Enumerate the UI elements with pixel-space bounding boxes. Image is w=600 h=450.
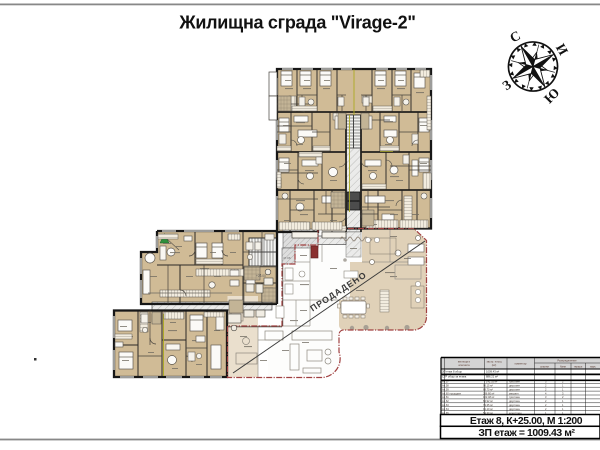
- svg-text:Ап.58: Ап.58: [442, 384, 449, 388]
- svg-text:Ап.59: Ап.59: [442, 387, 449, 391]
- svg-text:Ап.64: Ап.64: [442, 407, 449, 411]
- svg-text:Ап.61: Ап.61: [442, 395, 449, 399]
- svg-text:Ап.60 продаден: Ап.60 продаден: [442, 391, 462, 395]
- svg-text:бани: бани: [560, 365, 566, 369]
- svg-text:Ап.62: Ап.62: [442, 399, 449, 403]
- svg-text:ателиета: ателиета: [458, 364, 470, 367]
- svg-text:коментар: коментар: [515, 363, 527, 366]
- svg-text:47.06: 47.06: [283, 256, 291, 260]
- svg-text:1009.43 м²: 1009.43 м²: [486, 369, 499, 373]
- svg-text:+25.00: +25.00: [256, 274, 266, 278]
- svg-text:Разпределение: Разпределение: [557, 359, 577, 363]
- svg-text:Жилищна сграда "Virage-2": Жилищна сграда "Virage-2": [178, 13, 415, 33]
- svg-text:парк.: парк.: [590, 366, 597, 369]
- svg-text:Ап.63: Ап.63: [442, 403, 449, 407]
- svg-text:ЗП етаж = 1009.43 м²: ЗП етаж = 1009.43 м²: [478, 428, 575, 439]
- svg-text:тераси: тераси: [574, 366, 583, 369]
- svg-text:спални: спални: [540, 366, 549, 369]
- svg-text:ЗП етаж 8 общо: ЗП етаж 8 общо: [442, 369, 462, 373]
- svg-text:(м²): (м²): [492, 363, 497, 367]
- svg-text:Етаж 8, К+25.00, М 1:200: Етаж 8, К+25.00, М 1:200: [470, 416, 583, 427]
